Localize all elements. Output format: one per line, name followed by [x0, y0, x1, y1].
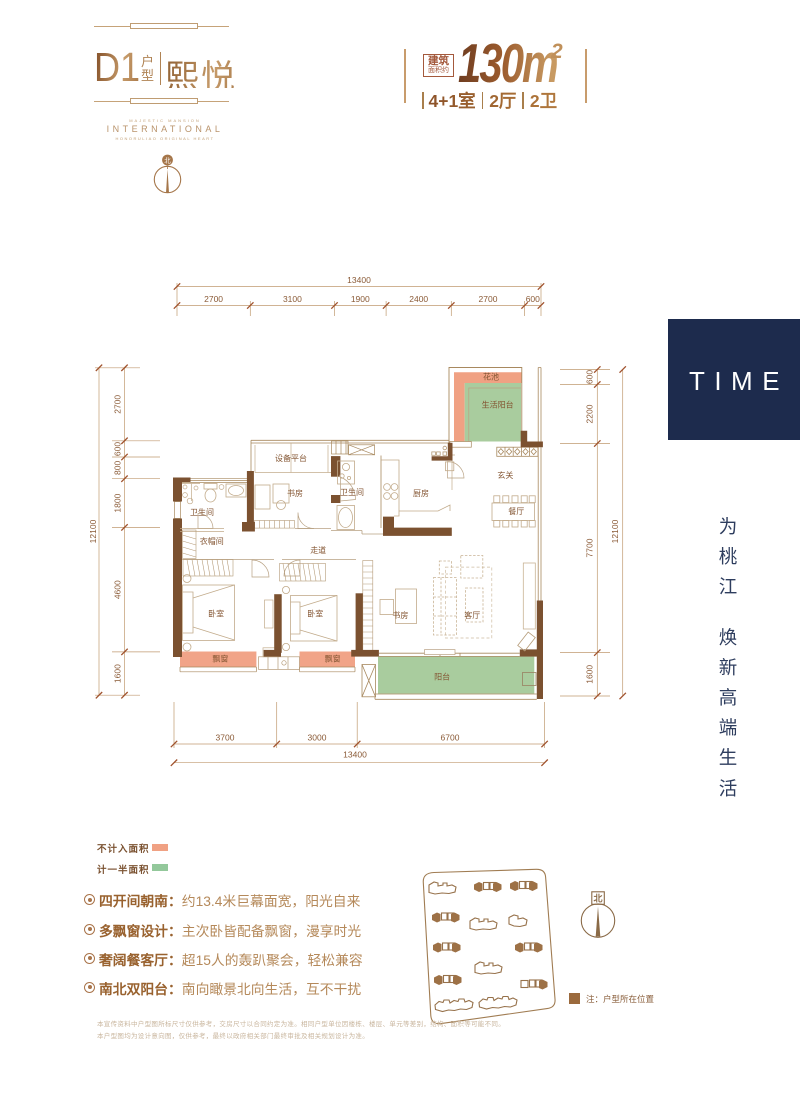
svg-text:13400: 13400: [343, 750, 367, 760]
svg-text:玄关: 玄关: [497, 470, 513, 480]
svg-text:走道: 走道: [310, 545, 326, 555]
svg-text:600: 600: [526, 294, 540, 304]
svg-text:7700: 7700: [585, 538, 595, 557]
svg-text:3100: 3100: [283, 294, 302, 304]
svg-text:卧室: 卧室: [208, 608, 224, 618]
svg-text:600: 600: [113, 442, 123, 456]
svg-text:卫生间: 卫生间: [190, 507, 214, 517]
svg-text:2700: 2700: [204, 294, 223, 304]
svg-text:1600: 1600: [585, 665, 595, 684]
svg-text:600: 600: [585, 370, 595, 384]
svg-text:餐厅: 餐厅: [508, 507, 524, 516]
svg-text:阳台: 阳台: [434, 672, 450, 682]
svg-text:注：户型所在位置: 注：户型所在位置: [586, 994, 655, 1004]
svg-text:北: 北: [593, 893, 602, 904]
svg-text:客厅: 客厅: [464, 610, 480, 620]
svg-text:2700: 2700: [113, 395, 123, 414]
svg-text:设备平台: 设备平台: [275, 453, 307, 463]
svg-text:6700: 6700: [441, 733, 460, 743]
svg-text:卧室: 卧室: [307, 608, 323, 618]
svg-text:书房: 书房: [287, 488, 303, 498]
svg-text:13400: 13400: [347, 275, 371, 285]
svg-text:12100: 12100: [610, 519, 620, 543]
svg-text:1800: 1800: [113, 493, 123, 512]
svg-text:生活阳台: 生活阳台: [482, 399, 514, 409]
svg-text:卫生间: 卫生间: [340, 487, 364, 497]
svg-text:3700: 3700: [216, 733, 235, 743]
svg-text:4600: 4600: [113, 580, 123, 599]
svg-text:2700: 2700: [479, 294, 498, 304]
svg-text:飘窗: 飘窗: [325, 653, 341, 663]
svg-text:花池: 花池: [483, 371, 499, 381]
svg-text:飘窗: 飘窗: [212, 653, 228, 663]
svg-text:2200: 2200: [585, 404, 595, 423]
svg-text:3000: 3000: [308, 733, 327, 743]
svg-text:1900: 1900: [351, 294, 370, 304]
svg-text:2400: 2400: [409, 294, 428, 304]
svg-text:衣帽间: 衣帽间: [200, 536, 224, 546]
svg-text:1600: 1600: [113, 664, 123, 683]
svg-text:12100: 12100: [88, 519, 98, 543]
svg-text:800: 800: [113, 461, 123, 475]
svg-text:书房: 书房: [392, 610, 408, 620]
svg-text:厨房: 厨房: [413, 488, 429, 498]
